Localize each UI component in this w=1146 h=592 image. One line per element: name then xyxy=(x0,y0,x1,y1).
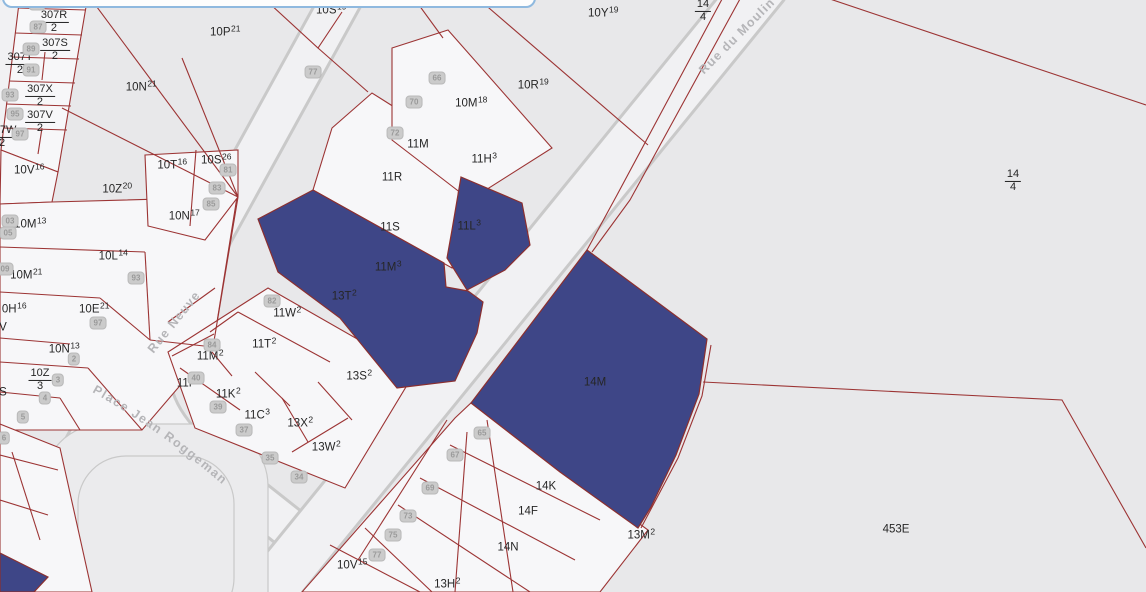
house-number-badge-65: 65 xyxy=(474,427,491,440)
parcel-label-10e21: 10E21 xyxy=(79,304,109,316)
house-number-badge-81: 81 xyxy=(220,164,237,177)
parcel-label-10y19: 10Y19 xyxy=(588,8,618,20)
parcel-fraction-307v-2: 307V2 xyxy=(25,110,55,134)
house-number-badge-2: 2 xyxy=(68,353,80,366)
parcel-label-13s2: 13S2 xyxy=(346,371,371,383)
house-number-badge-77: 77 xyxy=(305,66,322,79)
house-number-badge-77: 77 xyxy=(369,549,386,562)
parcel-label-453e: 453E xyxy=(883,524,910,536)
parcel-label-10t16: 10T16 xyxy=(157,160,186,172)
popup-window-edge[interactable] xyxy=(2,0,536,8)
parcel-label-10n17: 10N17 xyxy=(169,211,200,223)
house-number-badge-73: 73 xyxy=(400,510,417,523)
parcel-label-10v16: 10V16 xyxy=(14,165,44,177)
parcel-label-13t2: 13T2 xyxy=(332,291,357,303)
house-number-badge-95: 95 xyxy=(7,108,24,121)
house-number-badge-66: 66 xyxy=(429,72,446,85)
house-number-badge-93: 93 xyxy=(2,89,19,102)
house-number-badge-97: 97 xyxy=(90,317,107,330)
parcel-label-11h3: 11H3 xyxy=(472,154,497,166)
parcel-label-0h16: 0H16 xyxy=(2,304,26,316)
house-number-badge-09: 09 xyxy=(0,263,13,276)
parcel-label-11t2: 11T2 xyxy=(252,339,276,351)
house-number-badge-97: 97 xyxy=(12,128,29,141)
parcel-label-11r: 11R xyxy=(382,172,402,184)
parcel-fraction-14-4: 144 xyxy=(695,0,711,23)
parcel-label-11k2: 11K2 xyxy=(216,389,240,401)
house-number-badge-69: 69 xyxy=(422,482,439,495)
house-number-badge-84: 84 xyxy=(204,339,221,352)
parcel-label-10p21: 10P21 xyxy=(210,27,240,39)
parcel-label-11s: 11S xyxy=(380,222,400,234)
house-number-badge-3: 3 xyxy=(52,374,64,387)
house-number-badge-5: 5 xyxy=(17,411,29,424)
parcel-label-10l14: 10L14 xyxy=(99,251,128,263)
parcel-label-10z20: 10Z20 xyxy=(102,184,131,196)
parcel-label-11c3: 11C3 xyxy=(245,410,270,422)
parcel-label-11m2: 11M2 xyxy=(197,351,223,363)
parcel-label-10m21: 10M21 xyxy=(10,270,42,282)
parcel-label-v: V xyxy=(0,322,7,334)
parcel-label-11m: 11M xyxy=(407,139,429,151)
house-number-badge-37: 37 xyxy=(236,424,253,437)
house-number-badge-34: 34 xyxy=(291,471,308,484)
parcel-label-11m3: 11M3 xyxy=(375,262,401,274)
map-geometry: Place Jean Roggeman xyxy=(0,0,1146,592)
parcel-label-10m18: 10M18 xyxy=(455,98,487,110)
parcel-label-10m13: 10M13 xyxy=(14,219,46,231)
parcel-label-13h2: 13H2 xyxy=(434,579,460,591)
parcel-label-11w2: 11W2 xyxy=(273,308,301,320)
cadastral-map-canvas[interactable]: Place Jean Roggeman 210N2110P2110S1910Y1… xyxy=(0,0,1146,592)
house-number-badge-6: 6 xyxy=(0,432,10,445)
house-number-badge-05: 05 xyxy=(0,227,16,240)
parcel-label-13m2: 13M2 xyxy=(627,530,654,542)
parcel-fraction-10z-3: 10Z3 xyxy=(29,368,52,392)
house-number-badge-4: 4 xyxy=(39,392,51,405)
house-number-badge-82: 82 xyxy=(264,295,281,308)
house-number-badge-87: 87 xyxy=(30,21,47,34)
parcel-label-14m: 14M xyxy=(584,377,606,389)
house-number-badge-75: 75 xyxy=(385,529,402,542)
parcel-label-14n: 14N xyxy=(497,542,518,554)
house-number-badge-93: 93 xyxy=(128,272,145,285)
house-number-badge-39: 39 xyxy=(210,401,227,414)
parcel-label-13x2: 13X2 xyxy=(287,418,312,430)
house-number-badge-89: 89 xyxy=(23,43,40,56)
parcel-label-10v15: 10V15 xyxy=(337,560,367,572)
house-number-badge-70: 70 xyxy=(406,96,423,109)
parcel-label-10r19: 10R19 xyxy=(518,80,549,92)
parcel-label-11l3: 11L3 xyxy=(457,221,480,233)
house-number-badge-40: 40 xyxy=(188,372,205,385)
house-number-badge-67: 67 xyxy=(447,449,464,462)
parcel-label-14k: 14K xyxy=(536,481,556,493)
house-number-badge-85: 85 xyxy=(203,198,220,211)
parcel-fraction-307s-2: 307S2 xyxy=(40,38,70,62)
parcel-label-10n21: 10N21 xyxy=(126,82,157,94)
parcel-label-14f: 14F xyxy=(518,506,538,518)
parcel-fraction-307x-2: 307X2 xyxy=(25,84,55,108)
house-number-badge-72: 72 xyxy=(387,127,404,140)
house-number-badge-91: 91 xyxy=(23,64,40,77)
parcel-label-13w2: 13W2 xyxy=(312,442,340,454)
house-number-badge-83: 83 xyxy=(209,182,226,195)
parcel-label-s: S xyxy=(0,387,7,399)
house-number-badge-35: 35 xyxy=(262,452,279,465)
parcel-fraction-14-4: 144 xyxy=(1005,169,1021,193)
